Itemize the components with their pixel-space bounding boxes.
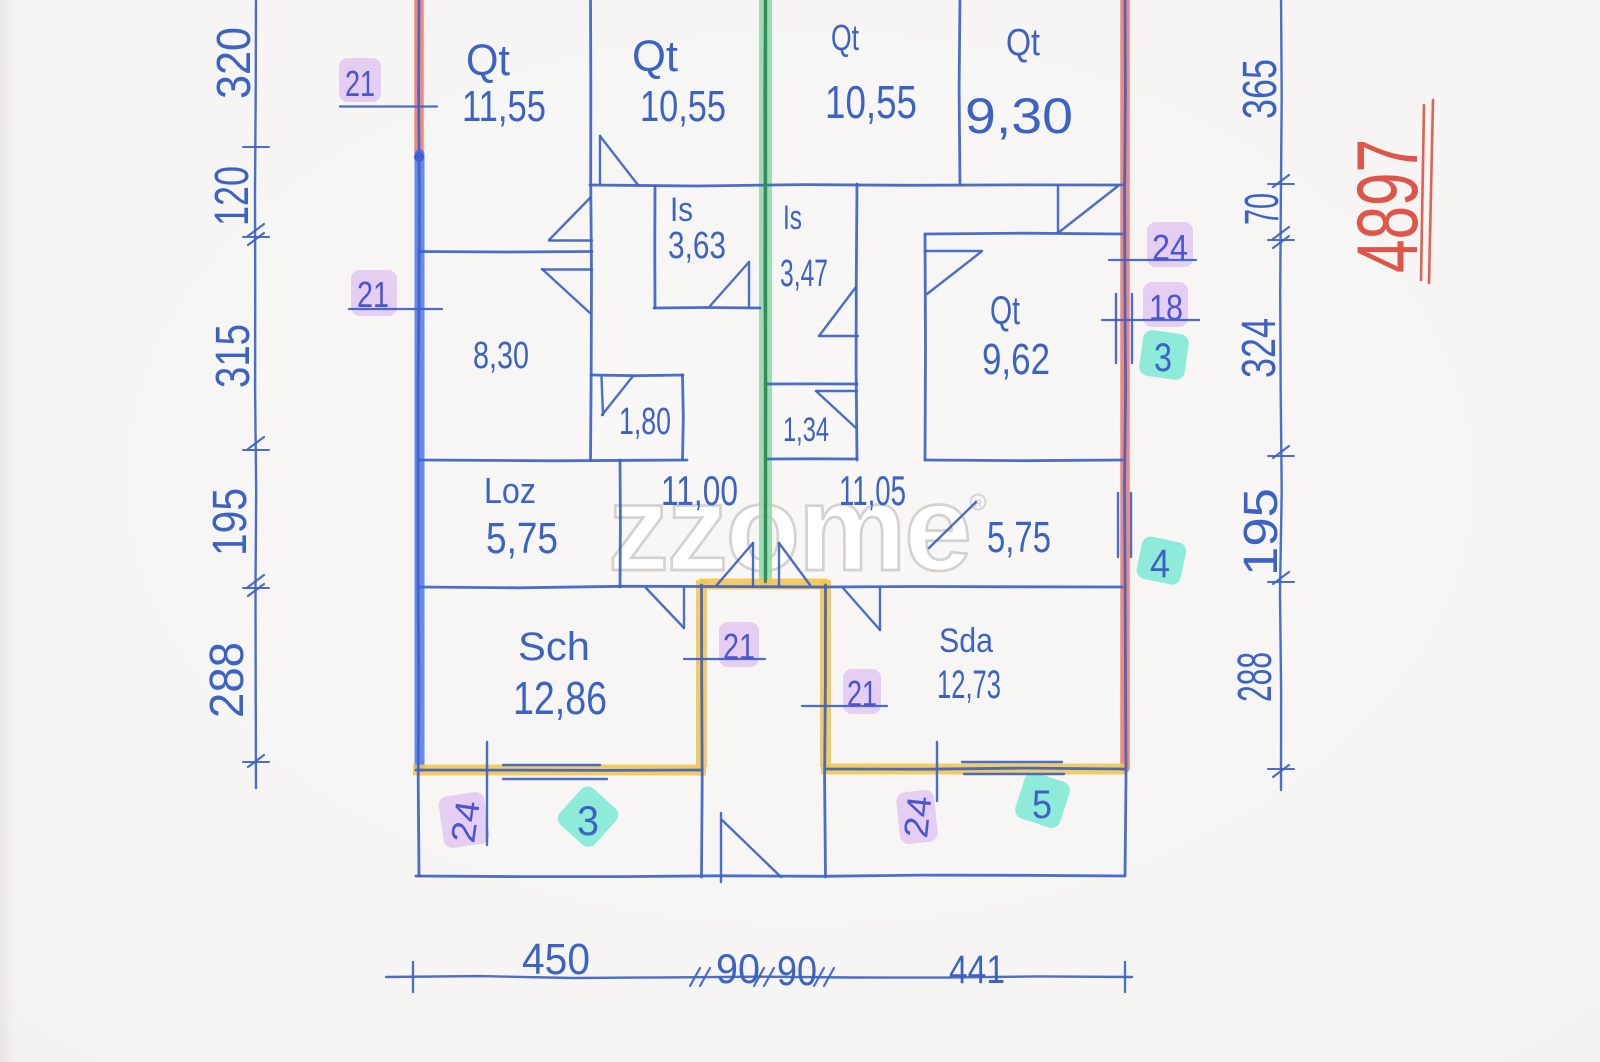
svg-text:9,30: 9,30 xyxy=(965,88,1073,144)
svg-text:12,73: 12,73 xyxy=(937,663,1001,707)
svg-text:450: 450 xyxy=(522,935,590,984)
svg-text:315: 315 xyxy=(207,324,260,388)
svg-text:1,80: 1,80 xyxy=(619,401,671,443)
svg-text:21: 21 xyxy=(357,274,389,315)
svg-text:18: 18 xyxy=(1149,287,1183,328)
svg-text:5,75: 5,75 xyxy=(486,514,558,563)
svg-text:90: 90 xyxy=(716,945,760,992)
svg-text:21: 21 xyxy=(345,63,375,104)
svg-text:4: 4 xyxy=(1150,542,1170,586)
svg-text:365: 365 xyxy=(1234,59,1287,119)
svg-text:1,34: 1,34 xyxy=(783,411,829,449)
svg-text:441: 441 xyxy=(949,948,1005,992)
svg-text:Qt: Qt xyxy=(1006,22,1040,64)
svg-text:24: 24 xyxy=(444,798,487,845)
svg-text:195: 195 xyxy=(204,488,257,556)
svg-text:324: 324 xyxy=(1233,318,1286,378)
svg-text:11,00: 11,00 xyxy=(661,467,738,514)
svg-text:10,55: 10,55 xyxy=(825,76,917,128)
svg-text:5: 5 xyxy=(1032,783,1052,827)
svg-text:Qt: Qt xyxy=(990,289,1020,333)
svg-text:21: 21 xyxy=(847,673,877,714)
svg-text:120: 120 xyxy=(206,166,259,226)
svg-text:3: 3 xyxy=(1154,336,1172,380)
svg-text:Is: Is xyxy=(783,199,802,237)
svg-text:320: 320 xyxy=(208,27,261,99)
svg-text:Qt: Qt xyxy=(466,36,510,85)
svg-text:Loz: Loz xyxy=(484,470,536,511)
svg-text:195: 195 xyxy=(1235,488,1288,576)
svg-text:288: 288 xyxy=(201,642,254,718)
svg-text:3,47: 3,47 xyxy=(780,253,828,295)
svg-text:Qt: Qt xyxy=(831,17,859,58)
svg-text:3: 3 xyxy=(577,797,599,844)
svg-text:Sda: Sda xyxy=(939,622,993,660)
svg-text:Sch: Sch xyxy=(518,625,590,669)
svg-text:21: 21 xyxy=(723,626,755,667)
svg-text:11,55: 11,55 xyxy=(462,82,546,131)
svg-text:9,62: 9,62 xyxy=(982,335,1050,384)
svg-text:24: 24 xyxy=(897,794,939,840)
svg-text:24: 24 xyxy=(1152,227,1188,268)
svg-text:11,05: 11,05 xyxy=(839,467,906,514)
svg-text:288: 288 xyxy=(1229,652,1282,702)
svg-text:8,30: 8,30 xyxy=(473,335,529,377)
svg-text:3,63: 3,63 xyxy=(668,225,726,267)
svg-text:70: 70 xyxy=(1236,193,1289,225)
svg-text:12,86: 12,86 xyxy=(513,672,607,724)
svg-text:10,55: 10,55 xyxy=(640,82,726,131)
svg-text:5,75: 5,75 xyxy=(987,513,1051,562)
svg-text:90: 90 xyxy=(777,947,817,994)
svg-text:Is: Is xyxy=(670,191,693,229)
svg-text:Qt: Qt xyxy=(632,32,678,81)
